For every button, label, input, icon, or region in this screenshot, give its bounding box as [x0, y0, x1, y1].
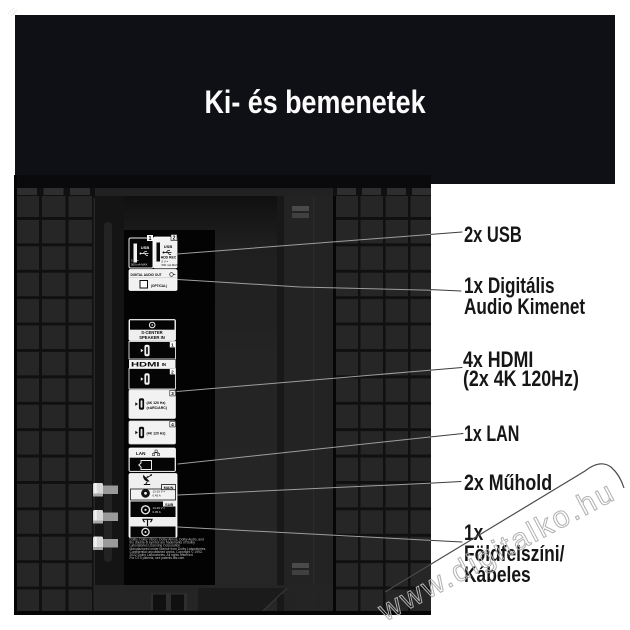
- svg-text:www.digitalko.hu: www.digitalko.hu: [372, 475, 621, 628]
